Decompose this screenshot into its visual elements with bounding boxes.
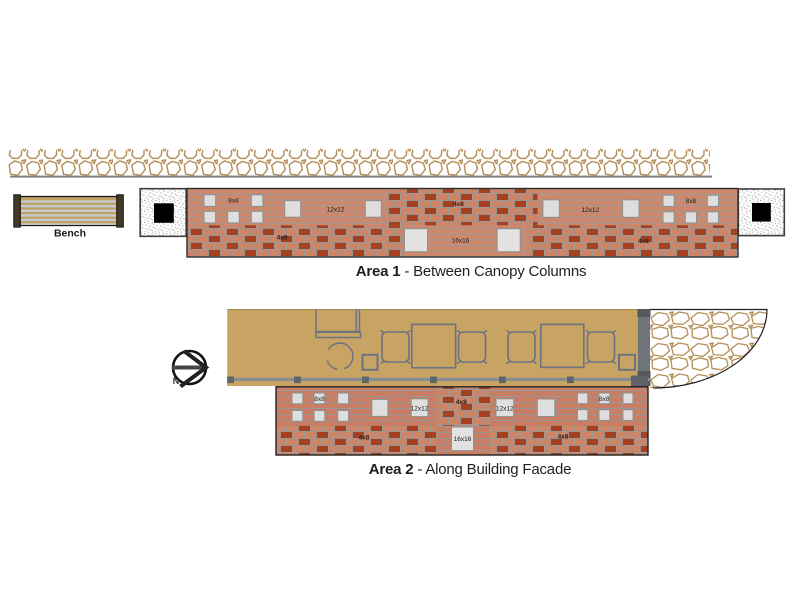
svg-text:16x16: 16x16 bbox=[454, 436, 472, 443]
svg-text:8x8: 8x8 bbox=[686, 198, 697, 205]
svg-text:4x8: 4x8 bbox=[558, 433, 569, 440]
svg-text:4x8: 4x8 bbox=[359, 435, 370, 442]
svg-text:12x12: 12x12 bbox=[411, 406, 429, 413]
svg-text:8x8: 8x8 bbox=[228, 198, 239, 205]
svg-text:12x12: 12x12 bbox=[582, 207, 600, 214]
svg-text:4x8: 4x8 bbox=[453, 201, 464, 208]
svg-text:4x8: 4x8 bbox=[638, 238, 649, 245]
svg-text:Area 1 - Between Canopy Column: Area 1 - Between Canopy Columns bbox=[356, 263, 587, 280]
svg-text:4x8: 4x8 bbox=[277, 235, 288, 242]
svg-text:N: N bbox=[173, 376, 180, 386]
svg-text:Bench: Bench bbox=[54, 228, 86, 240]
svg-text:16x16: 16x16 bbox=[452, 238, 470, 245]
svg-text:8x8: 8x8 bbox=[599, 396, 610, 403]
svg-text:4x8: 4x8 bbox=[456, 399, 467, 406]
svg-text:12x12: 12x12 bbox=[496, 406, 514, 413]
svg-text:12x12: 12x12 bbox=[327, 206, 345, 213]
svg-text:8x8: 8x8 bbox=[314, 396, 325, 403]
svg-text:Area 2 - Along Building Facade: Area 2 - Along Building Facade bbox=[369, 461, 571, 478]
